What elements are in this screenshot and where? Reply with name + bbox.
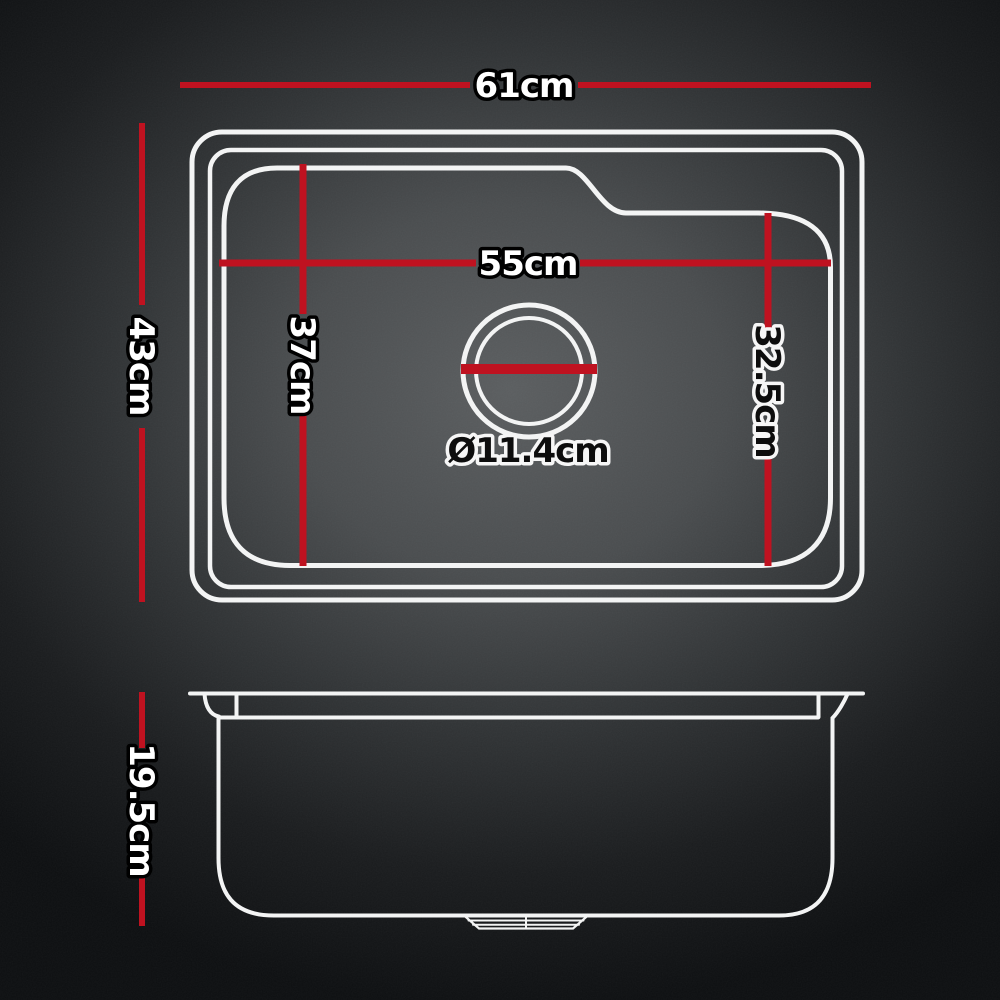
dim-label-drain-diameter: Ø11.4cm [447,431,608,471]
dim-label-overall-width: 61cm [475,66,574,106]
sink-dimension-diagram: 61cm 43cm 55cm 37cm 32.5cm Ø11.4cm 19.5c… [0,0,1000,1000]
dim-label-bowl-width: 55cm [479,244,578,284]
dim-label-bowl-depth-left: 37cm [282,316,322,415]
dim-label-bowl-depth-right: 32.5cm [747,324,787,457]
dim-label-bowl-height: 19.5cm [121,743,161,876]
dim-label-overall-depth: 43cm [121,317,161,416]
diagram-stage: 61cm 43cm 55cm 37cm 32.5cm Ø11.4cm 19.5c… [0,0,1000,1000]
